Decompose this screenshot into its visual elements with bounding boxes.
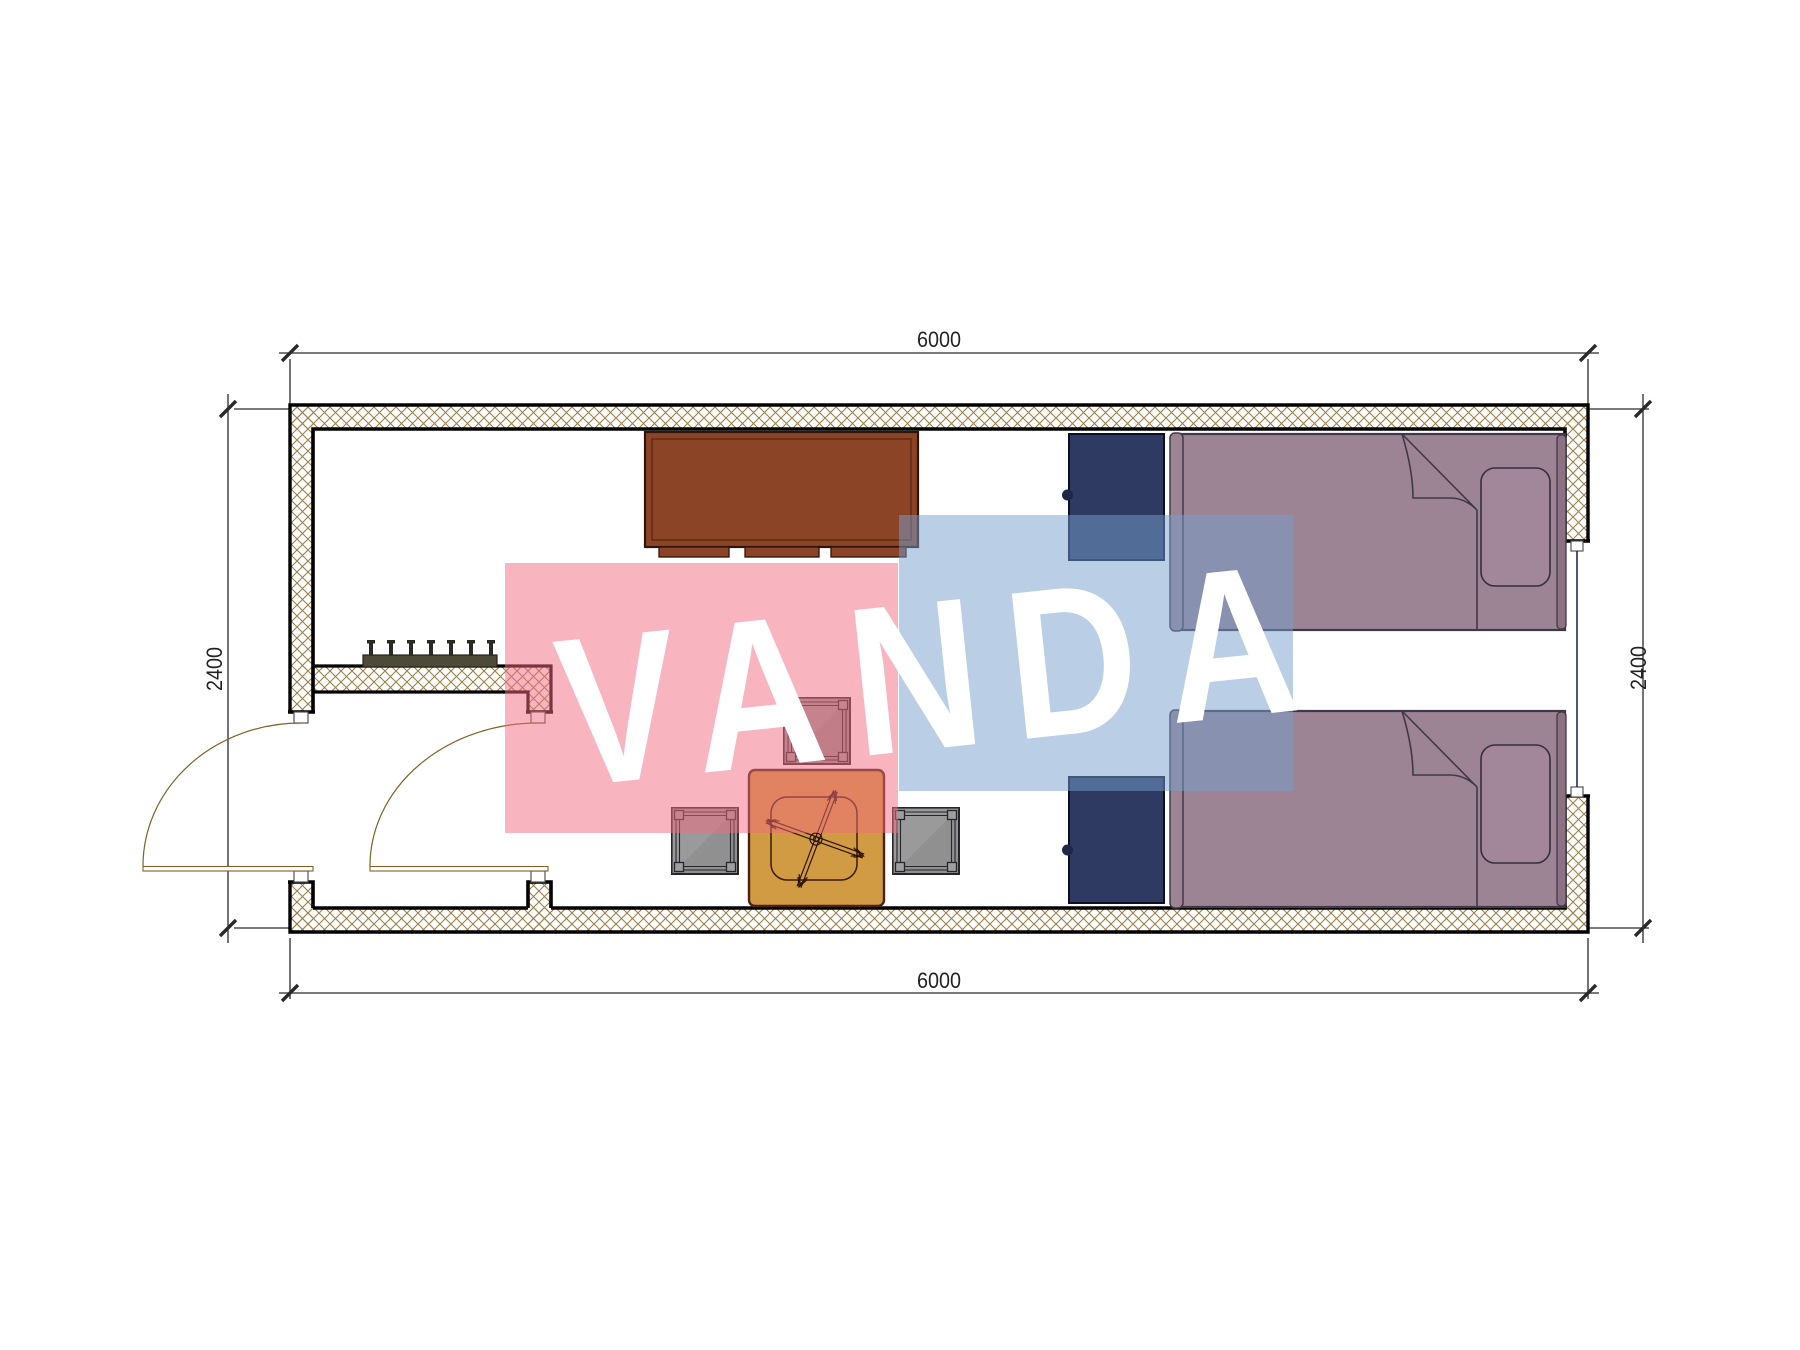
svg-text:2400: 2400: [202, 647, 227, 691]
svg-text:6000: 6000: [917, 327, 961, 352]
svg-text:6000: 6000: [917, 968, 961, 993]
svg-text:2400: 2400: [1626, 646, 1651, 690]
